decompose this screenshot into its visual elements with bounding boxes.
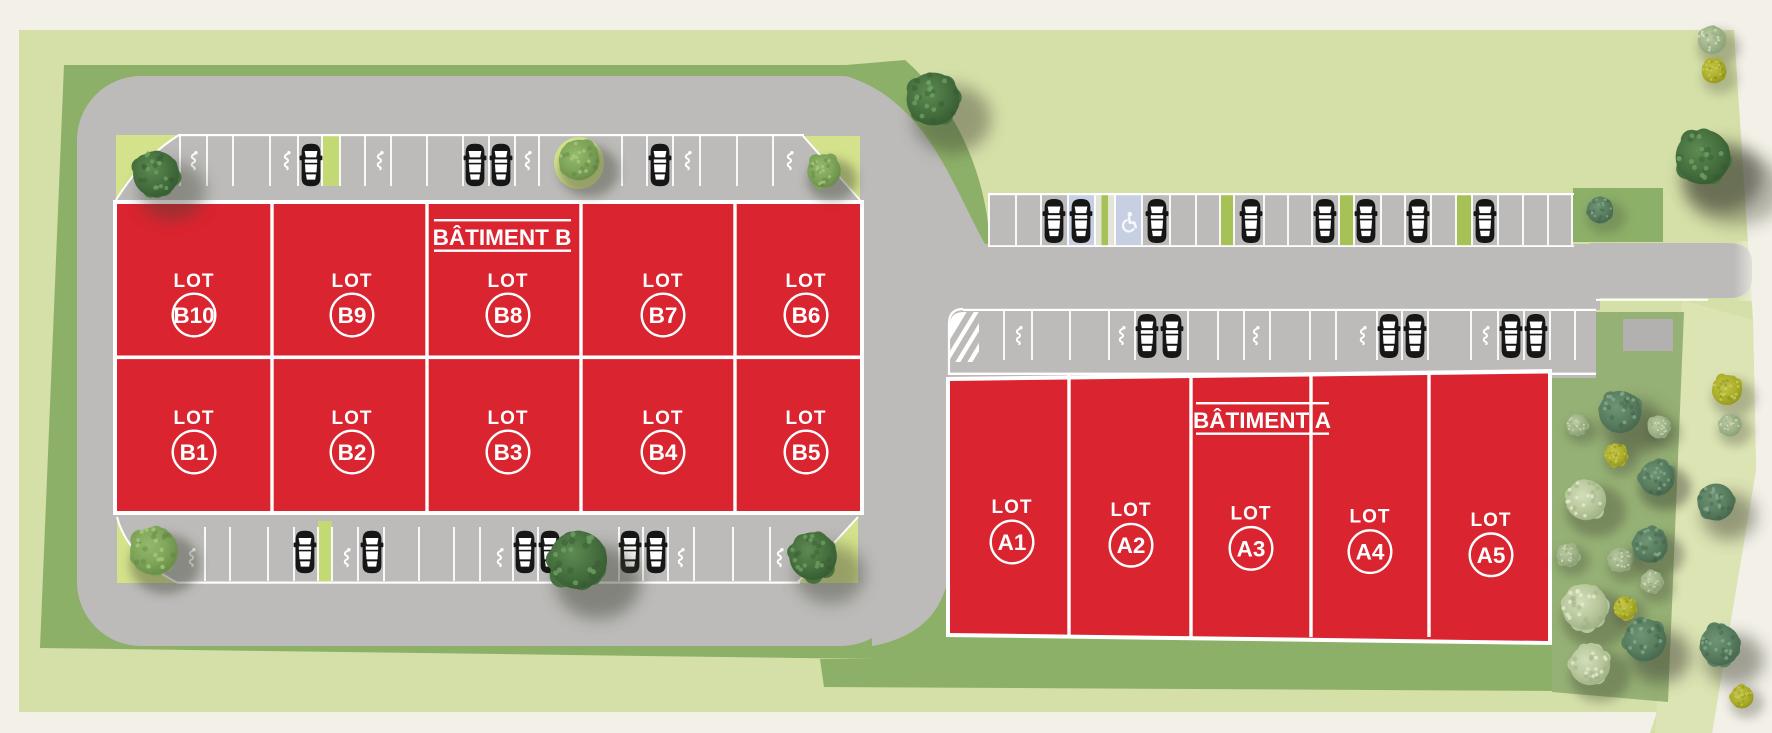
- svg-text:LOT: LOT: [488, 408, 529, 429]
- svg-text:LOT: LOT: [174, 408, 215, 429]
- svg-text:LOT: LOT: [1111, 500, 1152, 521]
- svg-text:B1: B1: [180, 440, 209, 465]
- svg-text:A3: A3: [1237, 536, 1266, 561]
- svg-text:LOT: LOT: [1350, 507, 1391, 528]
- svg-text:LOT: LOT: [1231, 503, 1272, 524]
- svg-text:A4: A4: [1356, 540, 1385, 565]
- svg-text:B9: B9: [338, 303, 367, 328]
- svg-text:LOT: LOT: [332, 408, 373, 429]
- svg-text:B10: B10: [173, 303, 214, 328]
- svg-text:LOT: LOT: [1471, 510, 1512, 531]
- svg-text:B2: B2: [338, 440, 367, 465]
- svg-text:LOT: LOT: [643, 271, 684, 292]
- svg-text:LOT: LOT: [174, 271, 215, 292]
- svg-text:B5: B5: [792, 440, 821, 465]
- svg-text:A1: A1: [998, 530, 1027, 555]
- svg-text:B6: B6: [792, 303, 821, 328]
- svg-text:B8: B8: [494, 303, 523, 328]
- svg-text:B7: B7: [649, 303, 678, 328]
- svg-text:LOT: LOT: [786, 408, 827, 429]
- svg-text:A5: A5: [1477, 543, 1506, 568]
- svg-text:LOT: LOT: [332, 271, 373, 292]
- svg-text:LOT: LOT: [992, 497, 1033, 518]
- svg-text:B3: B3: [494, 440, 523, 465]
- svg-text:BÂTIMENT A: BÂTIMENT A: [1193, 408, 1331, 433]
- svg-text:BÂTIMENT B: BÂTIMENT B: [433, 225, 572, 250]
- svg-text:B4: B4: [649, 440, 678, 465]
- svg-text:LOT: LOT: [643, 408, 684, 429]
- svg-text:LOT: LOT: [786, 271, 827, 292]
- svg-text:A2: A2: [1117, 533, 1146, 558]
- svg-text:LOT: LOT: [488, 271, 529, 292]
